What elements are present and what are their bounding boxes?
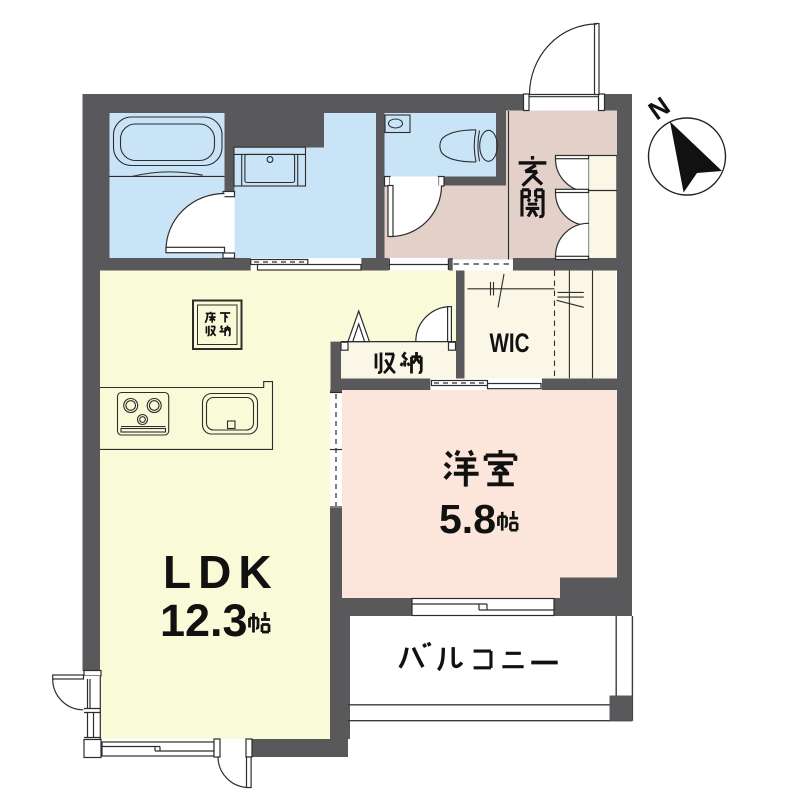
svg-text:LDK: LDK <box>163 546 279 598</box>
svg-text:12.3: 12.3 <box>160 595 248 646</box>
svg-text:5.8: 5.8 <box>439 496 496 542</box>
svg-text:WIC: WIC <box>490 328 530 358</box>
